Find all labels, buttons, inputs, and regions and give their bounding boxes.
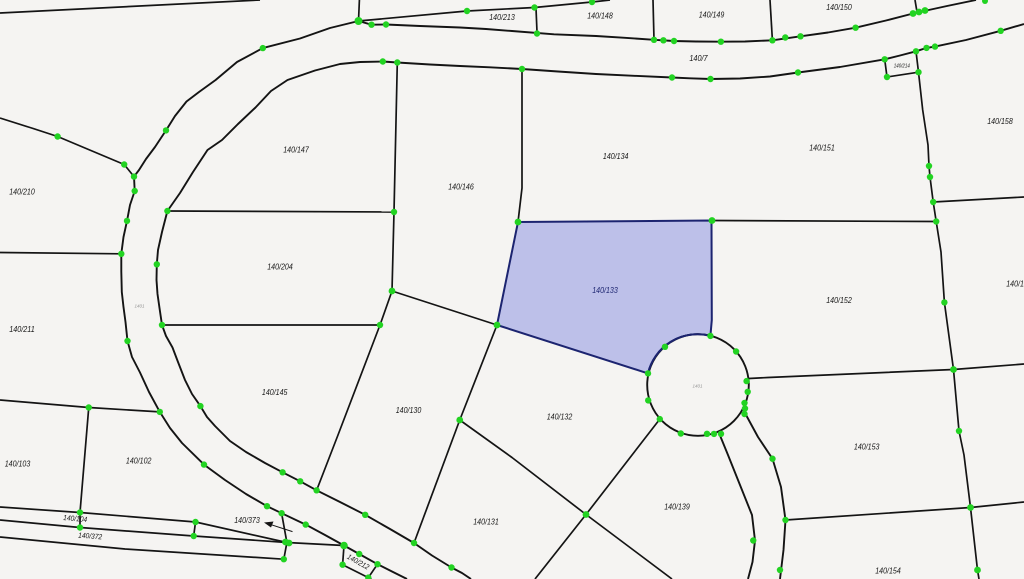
svg-text:140/150: 140/150 <box>826 3 852 12</box>
svg-text:140/148: 140/148 <box>587 12 613 21</box>
svg-text:1401: 1401 <box>134 304 145 309</box>
svg-text:140/211: 140/211 <box>9 325 35 334</box>
svg-text:140/154: 140/154 <box>875 567 901 576</box>
svg-text:140/152: 140/152 <box>826 296 852 305</box>
svg-text:140/131: 140/131 <box>473 518 499 527</box>
svg-text:140/204: 140/204 <box>267 263 293 272</box>
svg-text:140/157: 140/157 <box>1006 280 1024 289</box>
svg-text:140/133: 140/133 <box>592 286 618 295</box>
svg-text:140/214: 140/214 <box>894 64 910 70</box>
svg-text:140/151: 140/151 <box>809 144 835 153</box>
svg-text:140/134: 140/134 <box>603 152 629 161</box>
svg-text:140/213: 140/213 <box>489 13 515 22</box>
svg-text:140/158: 140/158 <box>987 117 1013 126</box>
svg-text:140/149: 140/149 <box>699 11 725 20</box>
svg-text:140/130: 140/130 <box>396 406 422 415</box>
svg-text:140/102: 140/102 <box>126 457 152 466</box>
svg-text:140/153: 140/153 <box>854 443 880 452</box>
svg-text:140/210: 140/210 <box>9 188 35 197</box>
svg-text:140/103: 140/103 <box>5 460 31 469</box>
svg-text:140/373: 140/373 <box>234 516 260 525</box>
svg-text:140/7: 140/7 <box>689 54 708 63</box>
svg-text:140/139: 140/139 <box>664 503 690 512</box>
svg-text:140/132: 140/132 <box>547 413 573 422</box>
svg-text:140/372: 140/372 <box>78 531 103 542</box>
svg-text:140/145: 140/145 <box>262 388 288 397</box>
svg-text:140/147: 140/147 <box>283 146 309 155</box>
svg-text:140/146: 140/146 <box>448 183 474 192</box>
svg-text:1401: 1401 <box>692 384 703 389</box>
